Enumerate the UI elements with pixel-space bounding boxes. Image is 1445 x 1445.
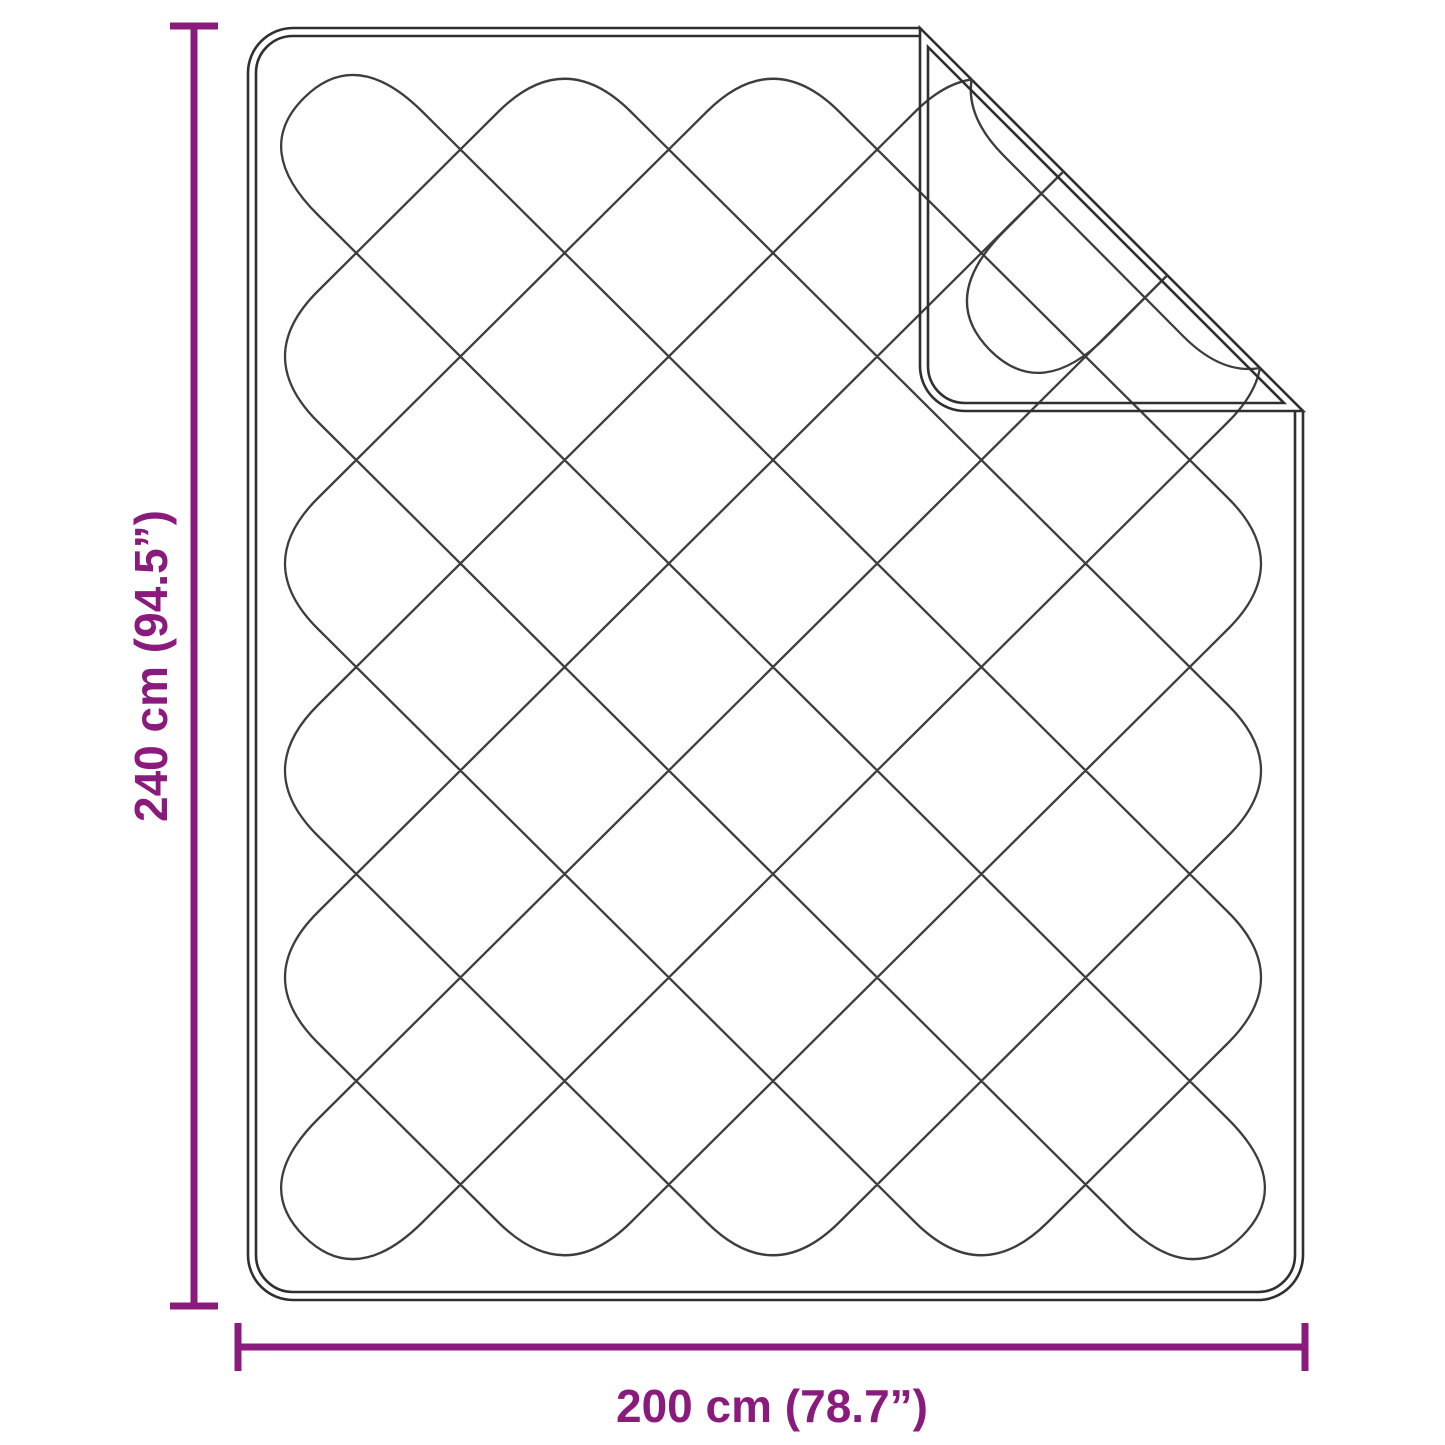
height-dimension-label: 240 cm (94.5”) [125,510,177,822]
width-dimension: 200 cm (78.7”) [238,1323,1305,1432]
blanket-dimension-diagram: 240 cm (94.5”) 200 cm (78.7”) [0,0,1445,1445]
height-dimension: 240 cm (94.5”) [125,26,218,1306]
width-dimension-label: 200 cm (78.7”) [616,1380,928,1432]
blanket-body [248,28,1303,1300]
diagram-canvas: 240 cm (94.5”) 200 cm (78.7”) [0,0,1445,1445]
